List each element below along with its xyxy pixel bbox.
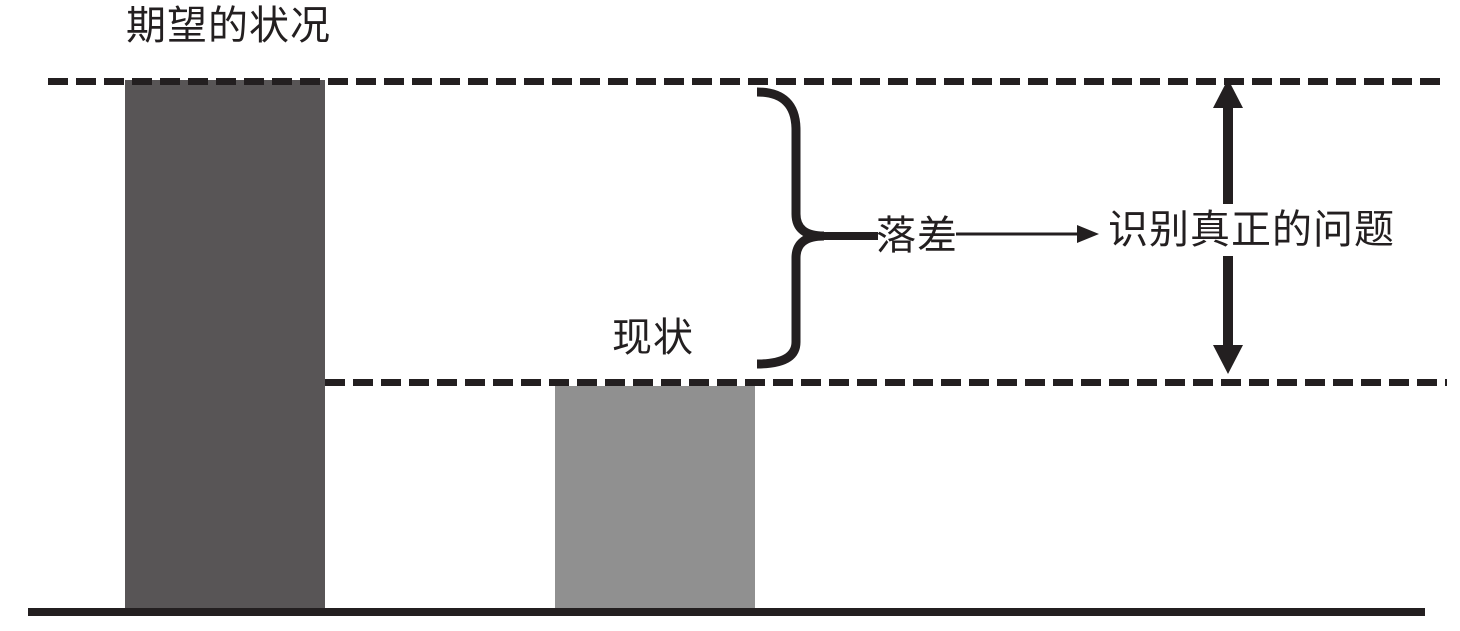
identify-problem-label: 识别真正的问题 — [1102, 204, 1401, 256]
gap-analysis-diagram: 期望的状况 现状 落差 识别真正的问题 — [0, 0, 1460, 631]
annotation-overlay — [0, 0, 1460, 631]
range-arrowhead-down-icon — [1213, 345, 1243, 374]
ground-line — [28, 608, 1425, 616]
range-arrowhead-up-icon — [1213, 79, 1243, 108]
gap-arrowhead-icon — [1077, 225, 1099, 243]
gap-brace — [757, 92, 824, 364]
